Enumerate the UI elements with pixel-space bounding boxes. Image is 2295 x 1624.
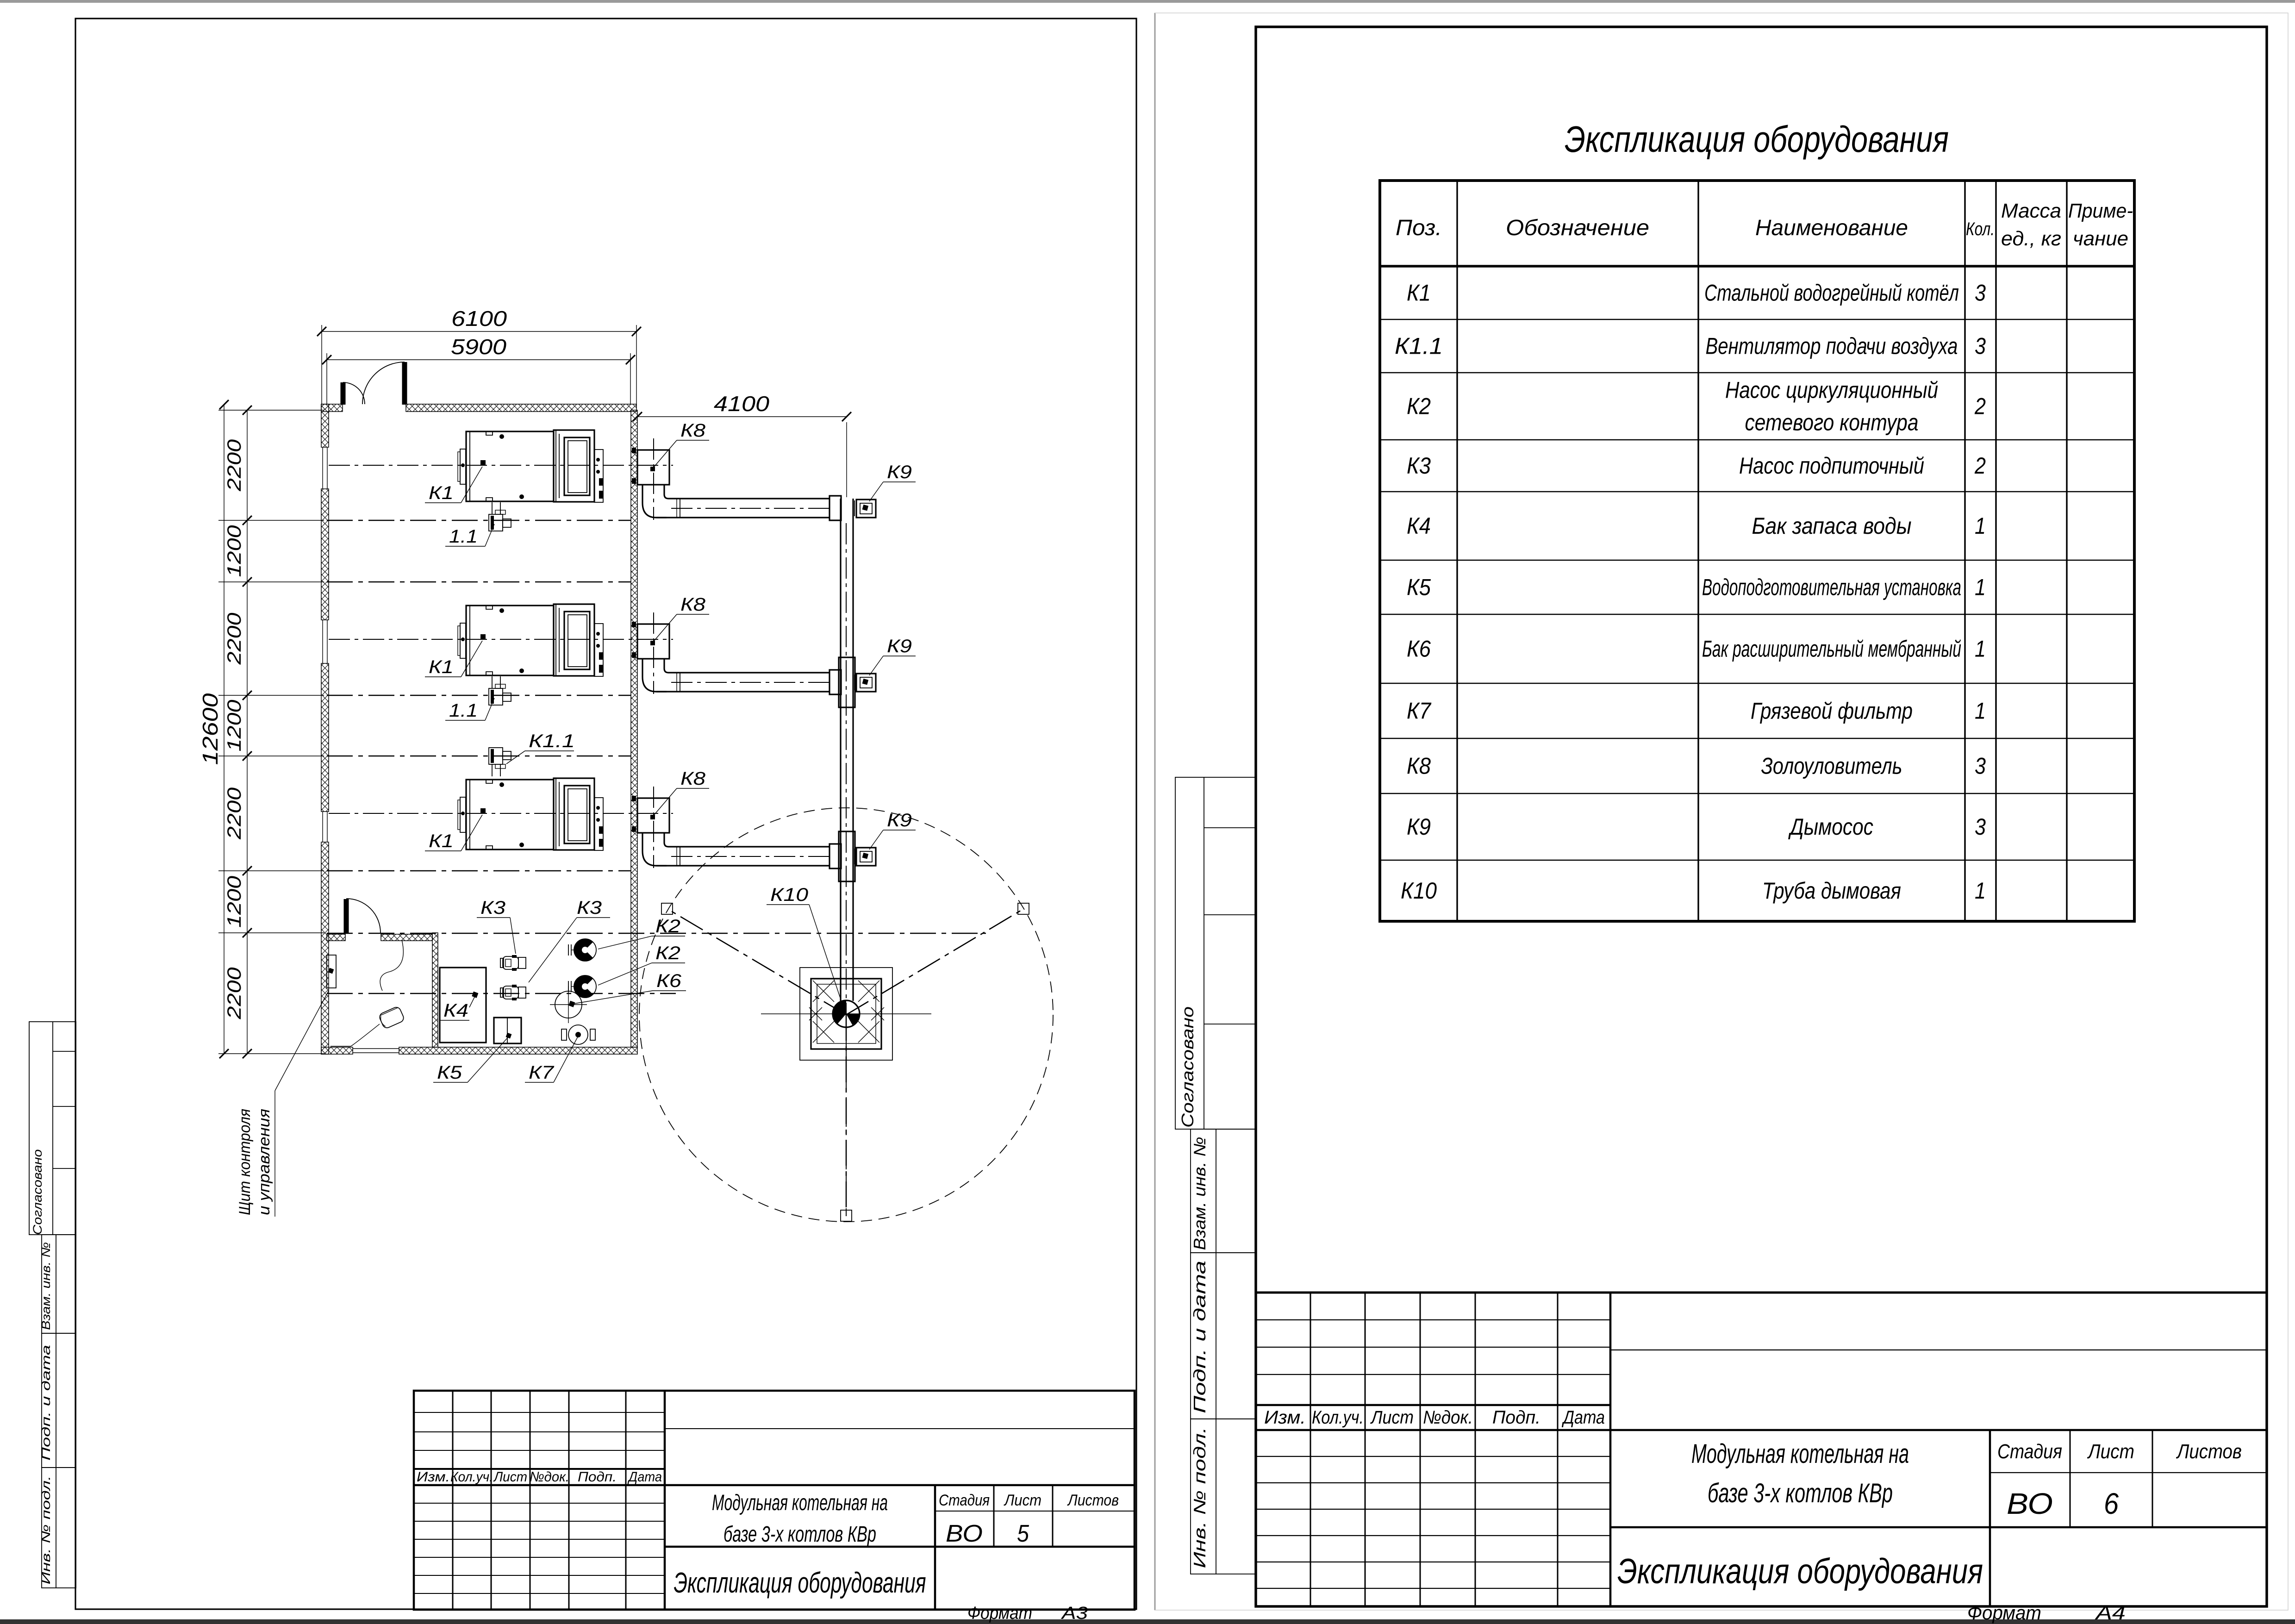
svg-text:К5: К5: [437, 1062, 462, 1083]
svg-text:К3: К3: [1407, 453, 1431, 479]
svg-text:К1.1: К1.1: [1395, 333, 1443, 359]
svg-text:Наименование: Наименование: [1755, 216, 1908, 240]
svg-text:К10: К10: [770, 885, 808, 905]
svg-text:К3: К3: [480, 898, 505, 918]
svg-text:К1.1: К1.1: [529, 731, 575, 751]
svg-text:Насос подпиточный: Насос подпиточный: [1739, 453, 1924, 479]
svg-text:Стальной водогрейный котёл: Стальной водогрейный котёл: [1704, 280, 1959, 306]
svg-text:К8: К8: [1407, 753, 1431, 779]
svg-text:Дата: Дата: [1562, 1407, 1605, 1428]
svg-text:Формат: Формат: [1967, 1602, 2041, 1624]
svg-text:К1: К1: [1407, 280, 1431, 306]
svg-text:К9: К9: [887, 810, 912, 831]
svg-text:Кол.уч.: Кол.уч.: [450, 1469, 493, 1485]
svg-text:Кол.: Кол.: [1966, 219, 1995, 239]
svg-text:Поз.: Поз.: [1396, 216, 1442, 240]
svg-text:К8: К8: [680, 594, 706, 615]
svg-text:Согласовано: Согласовано: [31, 1149, 44, 1235]
svg-text:Вентилятор подачи воздуха: Вентилятор подачи воздуха: [1706, 333, 1958, 359]
svg-text:Инв. № подл.: Инв. № подл.: [39, 1476, 53, 1585]
svg-text:Грязевой фильтр: Грязевой фильтр: [1751, 698, 1913, 724]
svg-text:К10: К10: [1401, 878, 1437, 904]
svg-text:Труба дымовая: Труба дымовая: [1762, 878, 1901, 904]
svg-text:Стадия: Стадия: [1997, 1440, 2062, 1463]
svg-text:3: 3: [1975, 753, 1986, 779]
svg-text:2200: 2200: [223, 787, 245, 840]
svg-text:Модульная котельная на: Модульная котельная на: [1691, 1439, 1909, 1469]
svg-text:Подп.: Подп.: [578, 1469, 617, 1485]
svg-text:1200: 1200: [223, 525, 245, 577]
svg-text:К8: К8: [680, 420, 706, 441]
svg-text:К5: К5: [1407, 575, 1431, 600]
svg-text:1.1: 1.1: [449, 700, 478, 721]
svg-text:5900: 5900: [451, 335, 506, 359]
svg-text:Инв. № подл.: Инв. № подл.: [1190, 1427, 1209, 1568]
svg-text:Дымосос: Дымосос: [1788, 814, 1873, 840]
svg-text:К7: К7: [529, 1062, 555, 1083]
svg-text:К4: К4: [443, 1000, 468, 1021]
svg-text:2: 2: [1974, 394, 1986, 419]
svg-text:Масса: Масса: [2001, 200, 2061, 222]
svg-text:и управления: и управления: [256, 1109, 273, 1215]
svg-text:Изм.: Изм.: [1264, 1407, 1306, 1428]
svg-text:Листов: Листов: [1067, 1492, 1119, 1509]
svg-text:базе 3-х котлов КВр: базе 3-х котлов КВр: [1708, 1478, 1893, 1508]
svg-text:Изм.: Изм.: [417, 1469, 450, 1485]
svg-text:А4: А4: [2094, 1602, 2126, 1624]
svg-text:К9: К9: [1407, 814, 1431, 840]
svg-text:К9: К9: [887, 636, 912, 656]
svg-text:Бак запаса воды: Бак запаса воды: [1752, 513, 1912, 539]
svg-text:2200: 2200: [223, 612, 245, 665]
svg-text:Взам. инв. №: Взам. инв. №: [39, 1242, 53, 1330]
svg-text:К2: К2: [655, 916, 680, 937]
svg-text:Кол.уч.: Кол.уч.: [1312, 1407, 1364, 1428]
svg-text:Лист: Лист: [2087, 1440, 2134, 1463]
svg-text:Подп.: Подп.: [1492, 1407, 1540, 1428]
svg-text:Стадия: Стадия: [939, 1492, 990, 1509]
svg-text:Дата: Дата: [627, 1469, 662, 1485]
svg-text:Щит контроля: Щит контроля: [236, 1109, 254, 1215]
svg-text:1: 1: [1975, 636, 1986, 662]
svg-text:1.1: 1.1: [449, 526, 478, 547]
svg-text:К1: К1: [429, 657, 454, 677]
svg-text:К6: К6: [656, 971, 682, 991]
svg-text:1: 1: [1975, 698, 1986, 724]
svg-text:1: 1: [1975, 878, 1986, 904]
svg-text:6100: 6100: [451, 306, 507, 331]
svg-text:Подп. и дата: Подп. и дата: [1190, 1261, 1209, 1413]
svg-text:Приме-: Приме-: [2068, 200, 2133, 222]
svg-text:2: 2: [1974, 453, 1986, 479]
svg-text:3: 3: [1975, 333, 1986, 359]
svg-text:Бак расширительный мембранный: Бак расширительный мембранный: [1702, 636, 1961, 662]
svg-text:Модульная котельная на: Модульная котельная на: [712, 1491, 888, 1515]
svg-text:Золоуловитель: Золоуловитель: [1761, 753, 1902, 779]
svg-text:К2: К2: [655, 943, 680, 963]
svg-text:Лист: Лист: [1004, 1492, 1041, 1509]
svg-text:Листов: Листов: [2176, 1440, 2242, 1463]
svg-text:ВО: ВО: [946, 1520, 983, 1547]
svg-text:12600: 12600: [198, 693, 222, 765]
svg-text:К2: К2: [1407, 394, 1431, 419]
svg-text:2200: 2200: [223, 439, 245, 492]
svg-text:Согласовано: Согласовано: [1178, 1006, 1197, 1128]
svg-text:№док.: №док.: [1423, 1407, 1473, 1428]
svg-text:Водоподготовительная установка: Водоподготовительная установка: [1702, 575, 1961, 600]
svg-text:Подп. и дата: Подп. и дата: [39, 1345, 53, 1461]
svg-text:3: 3: [1975, 280, 1986, 306]
svg-text:3: 3: [1975, 814, 1986, 840]
svg-text:Обозначение: Обозначение: [1506, 216, 1649, 240]
svg-text:К6: К6: [1407, 636, 1431, 662]
svg-text:К3: К3: [577, 898, 602, 918]
svg-text:К9: К9: [887, 462, 912, 482]
svg-text:1200: 1200: [223, 700, 245, 752]
svg-text:1: 1: [1975, 575, 1986, 600]
svg-text:№док.: №док.: [530, 1469, 569, 1485]
svg-text:сетевого контура: сетевого контура: [1745, 410, 1919, 436]
svg-text:К8: К8: [680, 768, 706, 789]
svg-text:Экспликация оборудования: Экспликация оборудования: [1617, 1552, 1983, 1591]
svg-text:5: 5: [1017, 1520, 1029, 1547]
svg-text:6: 6: [2104, 1487, 2119, 1520]
svg-text:2200: 2200: [223, 967, 245, 1020]
svg-text:К7: К7: [1407, 698, 1432, 724]
svg-text:Лист: Лист: [493, 1469, 527, 1485]
svg-text:Экспликация оборудования: Экспликация оборудования: [1565, 119, 1949, 160]
svg-text:Насос циркуляционный: Насос циркуляционный: [1725, 377, 1938, 403]
svg-text:Формат: Формат: [967, 1604, 1032, 1623]
svg-text:базе 3-х котлов КВр: базе 3-х котлов КВр: [723, 1522, 876, 1547]
svg-text:1200: 1200: [223, 875, 245, 928]
svg-text:К1: К1: [429, 831, 454, 851]
svg-text:К1: К1: [429, 483, 454, 503]
svg-text:Взам. инв. №: Взам. инв. №: [1190, 1137, 1209, 1250]
svg-text:чание: чание: [2073, 227, 2128, 250]
svg-text:Экспликация оборудования: Экспликация оборудования: [674, 1567, 926, 1599]
svg-text:1: 1: [1975, 513, 1986, 539]
svg-text:А3: А3: [1061, 1604, 1088, 1623]
svg-text:4100: 4100: [714, 392, 769, 416]
svg-text:Лист: Лист: [1370, 1407, 1414, 1428]
svg-text:К4: К4: [1407, 513, 1431, 539]
svg-text:ед., кг: ед., кг: [2001, 227, 2061, 250]
svg-text:ВО: ВО: [2007, 1487, 2053, 1520]
